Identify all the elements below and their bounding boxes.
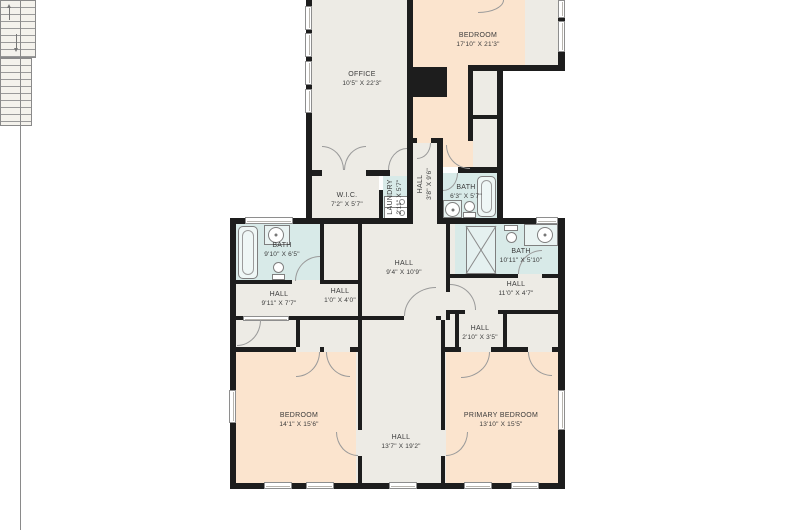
wall-segment (542, 274, 558, 278)
window (558, 390, 565, 430)
wall-segment (320, 218, 324, 284)
bath-left-label: BATH 9'10" X 6'5" (264, 241, 300, 259)
wall-segment (320, 347, 324, 352)
wall-segment (358, 456, 362, 483)
room-name: W.I.C. (331, 191, 363, 200)
sink-fixture (445, 202, 460, 217)
wall-segment (358, 218, 362, 320)
wall-segment (497, 65, 503, 218)
shower-fixture (466, 226, 496, 274)
hall-left-label: HALL 9'11" X 7'7" (261, 290, 296, 308)
wall-segment (446, 224, 450, 292)
room-dims: 2'10" X 3'5" (462, 333, 498, 342)
wall-segment (468, 115, 502, 119)
bedroom-left-label: BEDROOM 14'1" X 15'6" (279, 411, 318, 429)
room-dims: 9'11" X 7'7" (261, 299, 296, 308)
bedroom-closets-floor (473, 71, 497, 167)
wall-segment (441, 456, 445, 483)
wall-segment (498, 310, 558, 314)
room-dims: 1'0" X 4'0" (324, 296, 356, 305)
bedroom-top-nook-floor (525, 0, 558, 65)
hall-right-label: HALL 11'0" X 4'7" (498, 280, 533, 298)
floor-plan: OFFICE 10'5" X 22'3" BEDROOM 17'10" X 21… (0, 0, 800, 530)
room-dims: 11'0" X 4'7" (498, 289, 533, 298)
wall-segment (441, 320, 445, 430)
room-name: HALL (462, 324, 498, 333)
wall-segment (491, 347, 528, 352)
wall-segment (552, 347, 565, 352)
room-dims: 7'2" X 5'7" (331, 200, 363, 209)
room-name: HALL (416, 168, 425, 200)
room-name: HALL (381, 433, 420, 442)
wall-segment (558, 224, 565, 489)
room-dims: 9'4" X 10'9" (386, 268, 422, 277)
window (305, 33, 312, 57)
room-dims: 10'11" X 5'10" (500, 256, 543, 265)
window (536, 217, 558, 224)
room-name: LAUNDRY (386, 179, 395, 214)
wall-segment (230, 347, 296, 352)
bath-upper-label: BATH 6'3" X 5'7" (450, 183, 482, 201)
wall-segment (320, 280, 362, 284)
primary-bedroom-label: PRIMARY BEDROOM 13'10" X 15'5" (464, 411, 538, 429)
room-dims: 17'10" X 21'3" (456, 40, 499, 49)
toilet-fixture (504, 225, 518, 231)
wall-segment (230, 224, 236, 489)
bedroom-top-label: BEDROOM 17'10" X 21'3" (456, 31, 499, 49)
window (558, 21, 565, 52)
room-dims: 9'10" X 6'5" (264, 250, 300, 259)
wall-segment (306, 170, 322, 176)
chimney-block (407, 67, 447, 97)
room-name: BEDROOM (456, 31, 499, 40)
stairs-rail (20, 0, 21, 530)
room-dims: 14'1" X 15'6" (279, 420, 318, 429)
room-name: HALL (498, 280, 533, 289)
room-name: HALL (261, 290, 296, 299)
window (464, 482, 492, 489)
wall-segment (379, 190, 383, 218)
wall-segment (407, 0, 413, 222)
hall-vestibule-label: HALL 2'10" X 3'5" (462, 324, 498, 342)
window (264, 482, 292, 489)
room-name: PRIMARY BEDROOM (464, 411, 538, 420)
bath-right-label: BATH 10'11" X 5'10" (500, 247, 543, 265)
window (305, 61, 312, 85)
wall-segment (358, 320, 362, 430)
window (389, 482, 417, 489)
stairs-down-arrow (16, 34, 17, 50)
window (305, 6, 312, 30)
room-dims: 10'5" X 22'3" (342, 79, 381, 88)
staircase-lower (0, 58, 32, 126)
room-name: BEDROOM (279, 411, 318, 420)
window (511, 482, 539, 489)
room-name: HALL (324, 287, 356, 296)
window (305, 89, 312, 113)
room-dims: 2'11" X 5'7" (395, 179, 404, 214)
wall-segment (468, 71, 473, 141)
window (306, 482, 334, 489)
wall-segment (362, 316, 404, 320)
room-dims: 3'8" X 9'6" (425, 168, 434, 200)
hall-small-label: HALL 1'0" X 4'0" (324, 287, 356, 305)
window (245, 217, 293, 224)
wall-segment (450, 274, 518, 278)
wall-segment (436, 316, 441, 320)
wall-segment (236, 280, 292, 284)
wall-segment (407, 138, 417, 143)
window (558, 0, 565, 18)
hall-lower-label: HALL 13'7" X 19'2" (381, 433, 420, 451)
toilet-fixture (273, 262, 284, 273)
room-name: BATH (450, 183, 482, 192)
hall-center-label: HALL 9'4" X 10'9" (386, 259, 422, 277)
wall-segment (296, 320, 300, 347)
wic-label: W.I.C. 7'2" X 5'7" (331, 191, 363, 209)
window (229, 390, 236, 423)
room-name: OFFICE (342, 70, 381, 79)
laundry-label: LAUNDRY 2'11" X 5'7" (386, 179, 404, 214)
wall-segment (366, 170, 390, 176)
room-name: BATH (500, 247, 543, 256)
stairs-up-arrow (9, 6, 10, 20)
wall-segment (468, 65, 565, 71)
room-dims: 6'3" X 5'7" (450, 192, 482, 201)
room-dims: 13'10" X 15'5" (464, 420, 538, 429)
room-name: HALL (386, 259, 422, 268)
office-room-label: OFFICE 10'5" X 22'3" (342, 70, 381, 88)
toilet-fixture (464, 201, 475, 212)
staircase-upper (0, 0, 36, 58)
bathtub-fixture (238, 226, 258, 279)
sink-fixture (537, 227, 553, 243)
room-name: BATH (264, 241, 300, 250)
room-dims: 13'7" X 19'2" (381, 442, 420, 451)
hall-upper-label: HALL 3'8" X 9'6" (416, 168, 434, 200)
toilet-fixture (506, 232, 517, 243)
